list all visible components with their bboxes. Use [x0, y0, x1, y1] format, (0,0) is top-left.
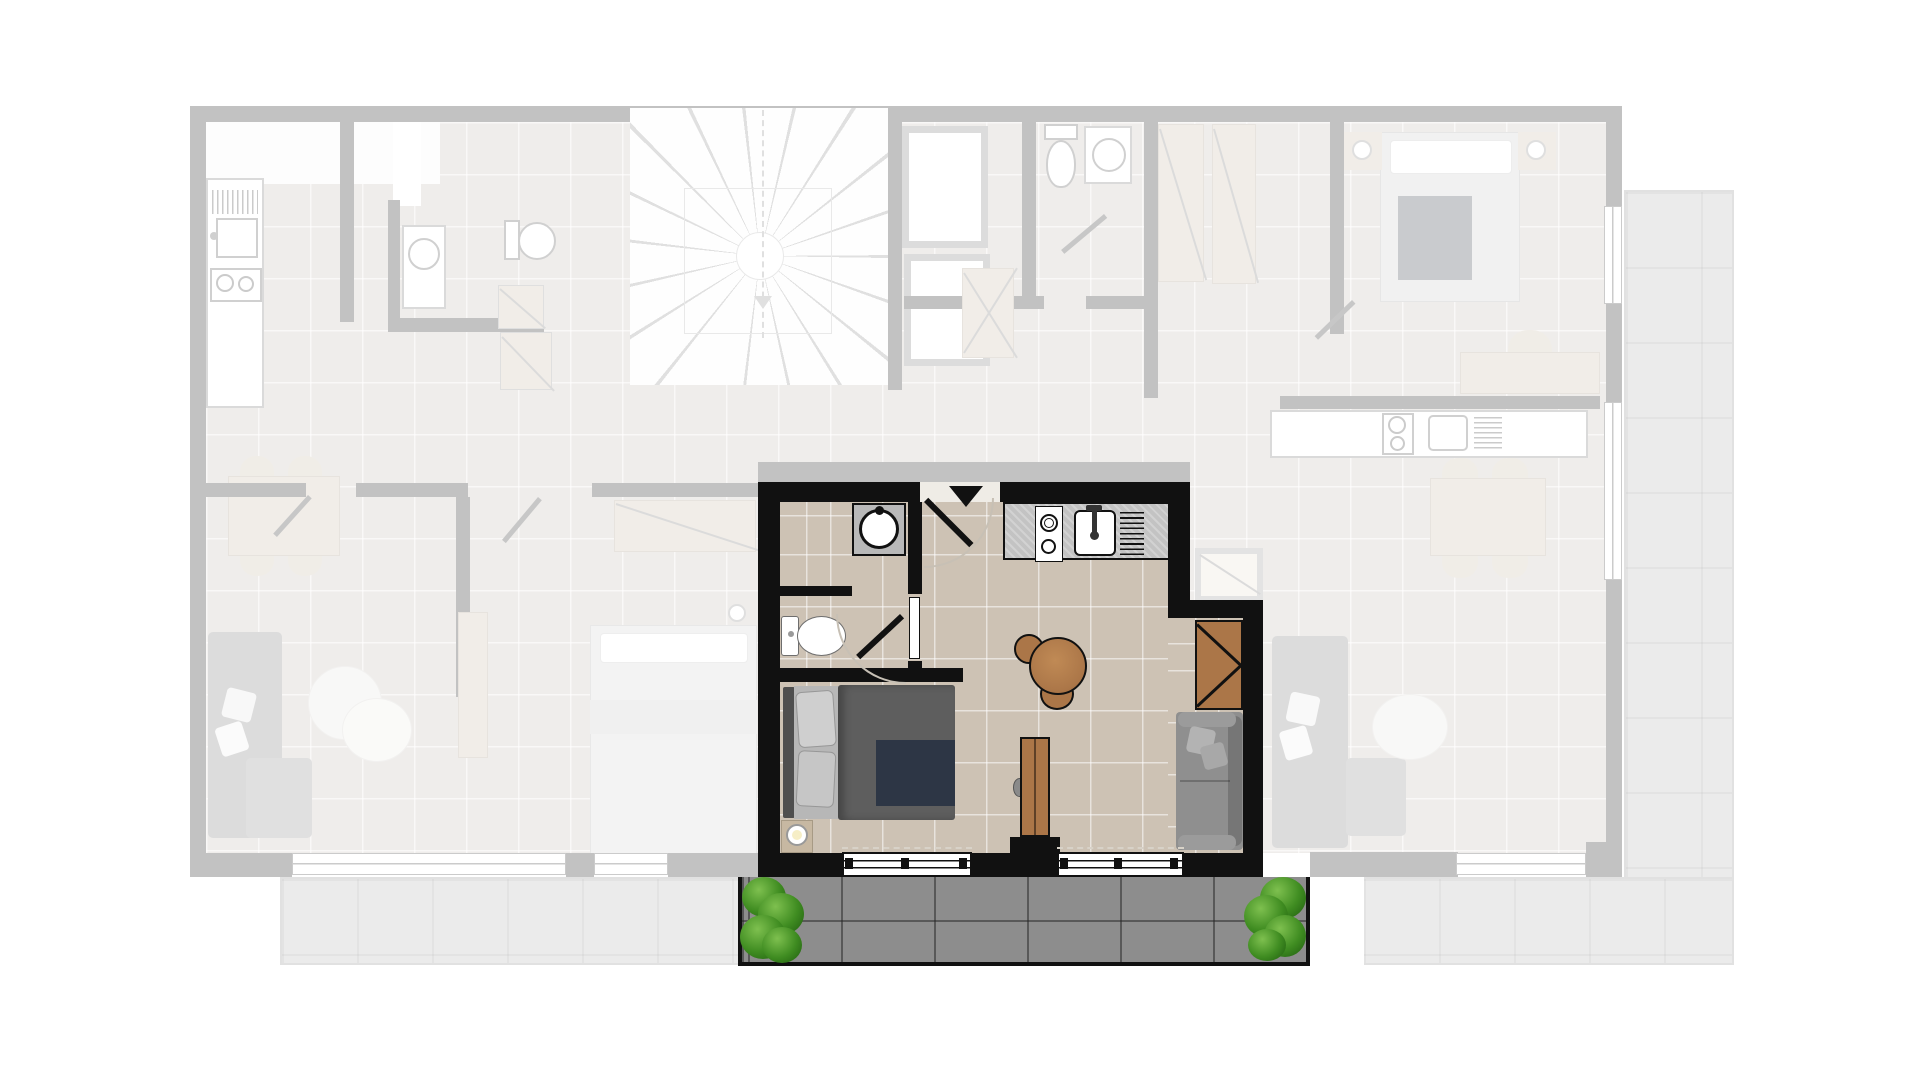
- entry-arrow-icon: [949, 486, 983, 507]
- bed-pillow: [795, 690, 837, 749]
- wall-right-lower: [1243, 600, 1263, 877]
- burner-small: [1041, 539, 1056, 554]
- sofa: [1176, 712, 1243, 850]
- wall-bottom-2: [972, 853, 1060, 877]
- wash-basin: [859, 509, 899, 549]
- bathroom-wall-vertical: [908, 502, 922, 594]
- balcony-planter-right: [1244, 877, 1308, 962]
- balcony-planter-left: [740, 877, 806, 964]
- window-post: [845, 858, 853, 869]
- wall-top-left: [758, 482, 920, 502]
- tv-sideboard-seam: [1034, 739, 1036, 835]
- wall-tv-pier: [1010, 837, 1060, 854]
- bathroom-door-panel: [909, 597, 920, 659]
- sink-faucet-base: [1090, 531, 1099, 540]
- nightstand-lamp-glow: [792, 830, 802, 840]
- bed-blanket: [876, 740, 955, 806]
- floor-plan-canvas: [0, 0, 1920, 1080]
- window-post: [959, 858, 967, 869]
- basin-faucet: [875, 506, 884, 515]
- wall-left: [758, 482, 780, 877]
- bathroom-wall-stub: [908, 661, 922, 677]
- sofa-armrest: [1178, 712, 1236, 727]
- wall-top-right: [1000, 482, 1190, 502]
- wall-bottom-3: [1184, 853, 1263, 877]
- burner-large-inner: [1044, 518, 1054, 528]
- window-post: [1060, 858, 1068, 869]
- plant-foliage: [1248, 929, 1286, 961]
- balcony-tile-joint: [742, 920, 1306, 922]
- window-post: [1114, 858, 1122, 869]
- window-post: [901, 858, 909, 869]
- window-post: [1170, 858, 1178, 869]
- round-dining-table: [1029, 637, 1087, 695]
- wardrobe: [1195, 620, 1243, 710]
- bed: [783, 685, 955, 820]
- window-lintel-dash: [1057, 847, 1184, 849]
- window-lintel-dash: [842, 847, 972, 849]
- sofa-seam: [1180, 780, 1230, 782]
- highlighted-studio-unit: [0, 0, 1920, 1080]
- sofa-armrest: [1178, 835, 1236, 850]
- toilet-flush-button: [788, 631, 794, 637]
- bathroom-wall-horizontal: [780, 586, 852, 596]
- wall-bottom-1: [758, 853, 842, 877]
- sofa-back: [1228, 716, 1242, 846]
- plant-foliage: [762, 927, 802, 963]
- dish-drainer: [1120, 512, 1144, 558]
- wall-right-upper: [1168, 502, 1190, 600]
- bed-pillow: [796, 750, 837, 808]
